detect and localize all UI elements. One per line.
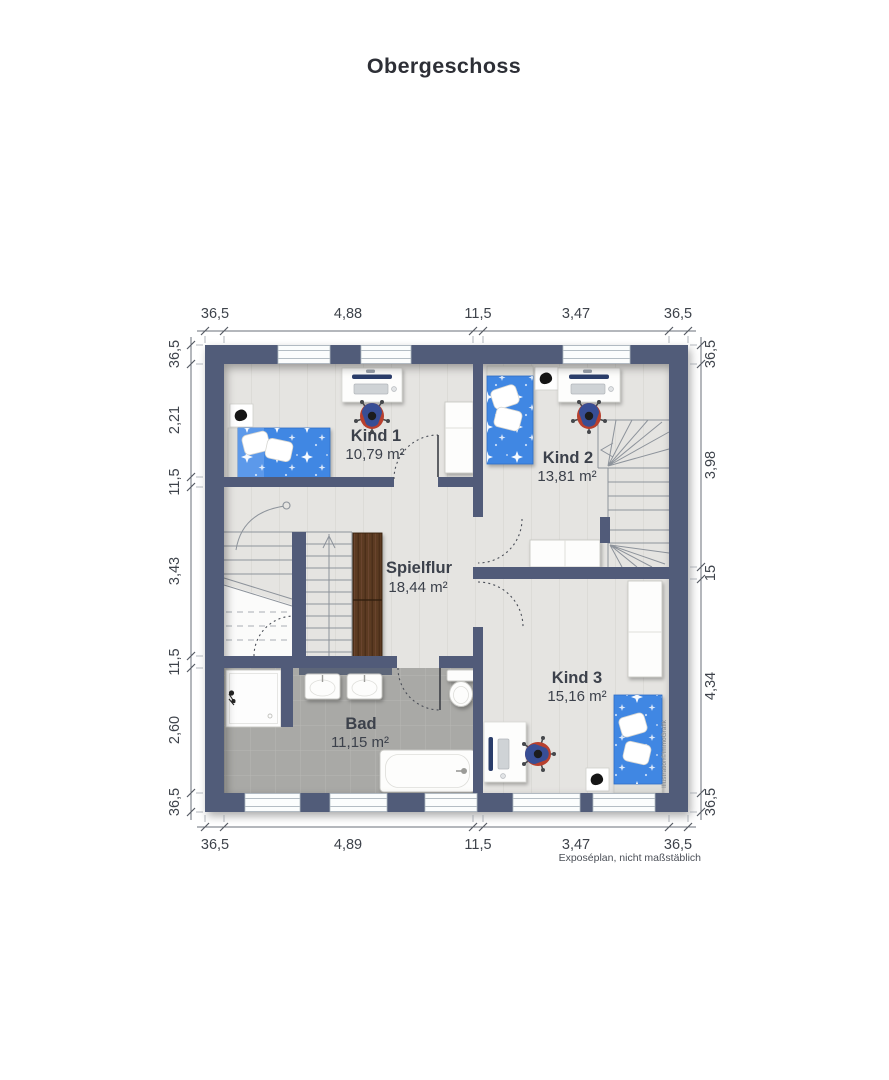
dimension-top: 36,5 4,88 11,5 3,47 36,5 [197, 306, 696, 343]
dim-label: 11,5 [167, 648, 183, 675]
bad-name: Bad [345, 715, 376, 733]
kind3-lamp-icon [586, 768, 609, 791]
window [425, 794, 477, 812]
dim-label: 2,21 [167, 406, 183, 434]
wall-winder-stub [600, 517, 610, 543]
floorplan-drawing: Kind 1 10,79 m² Kind 2 13,81 m² Spielflu… [0, 0, 889, 1080]
kind3-bed [614, 695, 662, 793]
window [563, 346, 630, 364]
kind2-dresser [530, 540, 600, 567]
kind2-desk [558, 368, 620, 402]
dim-label: 36,5 [703, 788, 719, 816]
dim-label: 4,34 [703, 672, 719, 700]
kind2-nightstand [535, 367, 558, 390]
wall-kind1-hall-left [224, 477, 394, 487]
wall-bad-kind3 [473, 627, 483, 793]
keyboard-icon [571, 384, 605, 394]
washbasin-2 [347, 674, 382, 699]
kind3-name: Kind 3 [552, 669, 602, 687]
dim-label: 11,5 [464, 837, 491, 853]
wall-bad-top-right [439, 656, 473, 668]
wall-stair-spine [292, 532, 306, 656]
wall-shower-side [281, 668, 293, 727]
wall-kind1-hall-right [438, 477, 473, 487]
kind2-name: Kind 2 [543, 449, 593, 467]
kind2-bed [487, 366, 533, 464]
toilet [447, 670, 475, 707]
dim-label: 11,5 [464, 306, 491, 322]
monitor-icon [569, 375, 609, 380]
dim-label: 3,47 [562, 837, 590, 853]
dim-label: 36,5 [167, 788, 183, 816]
kind3-wardrobe [628, 581, 662, 677]
spielflur-area: 18,44 m² [388, 579, 447, 596]
mouse-icon [392, 387, 397, 392]
dim-label: 36,5 [664, 837, 692, 853]
dim-label: 36,5 [664, 306, 692, 322]
floorplan-page: Kind 1 10,79 m² Kind 2 13,81 m² Spielflu… [0, 0, 889, 1080]
kind3-area: 15,16 m² [547, 688, 606, 705]
dim-label: 11,5 [167, 468, 183, 495]
bathtub [380, 750, 475, 792]
shower [226, 670, 281, 727]
wall-kind1-kind2 [473, 364, 483, 517]
dimension-right: 36,5 3,98 15 4,34 36,5 [690, 337, 719, 820]
dimension-bottom: 36,5 4,89 11,5 3,47 36,5 [197, 815, 696, 853]
wall-bad-top-left [224, 656, 397, 668]
dimension-left: 36,5 2,21 11,5 3,43 11,5 2,60 36,5 [167, 337, 203, 820]
window [245, 794, 300, 812]
page-title: Obergeschoss [367, 54, 521, 78]
desk-speaker-icon [366, 370, 375, 374]
dim-label: 4,88 [334, 306, 362, 322]
desk-speaker-icon [583, 370, 592, 374]
dim-label: 4,89 [334, 837, 362, 853]
dim-label: 15 [703, 565, 719, 581]
spielflur-name: Spielflur [386, 559, 453, 577]
keyboard-icon [354, 384, 388, 394]
keyboard-icon [498, 739, 509, 769]
window [330, 794, 387, 812]
dim-label: 3,43 [167, 557, 183, 585]
kind1-lamp-icon [230, 404, 253, 427]
kind3-nightstand [586, 768, 609, 791]
dim-label: 36,5 [201, 837, 229, 853]
mouse-icon [501, 774, 506, 779]
washbasin-1 [305, 674, 340, 699]
wall-kind2-kind3 [473, 567, 669, 579]
monitor-icon [489, 737, 494, 771]
dim-label: 2,60 [167, 716, 183, 744]
kind2-lamp-icon [535, 367, 558, 390]
scale-disclaimer: Exposéplan, nicht maßstäblich [559, 852, 702, 864]
kind1-wardrobe [445, 402, 473, 473]
kind1-desk [342, 368, 402, 402]
dim-label: 3,47 [562, 306, 590, 322]
monitor-icon [352, 375, 392, 380]
window [513, 794, 580, 812]
kind3-desk [484, 722, 526, 782]
window [361, 346, 411, 364]
kind1-nightstand [230, 404, 253, 427]
dim-label: 3,98 [703, 451, 719, 479]
mouse-icon [609, 387, 614, 392]
illustrator-watermark: Illustration©ImmoGrafik [660, 719, 668, 788]
kind1-bed [228, 428, 330, 478]
window [278, 346, 330, 364]
bad-area: 11,15 m² [331, 734, 389, 751]
hall-wardrobe [353, 533, 382, 657]
stair-newel-post [283, 502, 290, 509]
dim-label: 36,5 [703, 340, 719, 368]
window [593, 794, 655, 812]
dim-label: 36,5 [167, 340, 183, 368]
kind2-area: 13,81 m² [537, 468, 596, 485]
dim-label: 36,5 [201, 306, 229, 322]
kind1-area: 10,79 m² [345, 446, 404, 463]
kind1-name: Kind 1 [351, 427, 401, 445]
